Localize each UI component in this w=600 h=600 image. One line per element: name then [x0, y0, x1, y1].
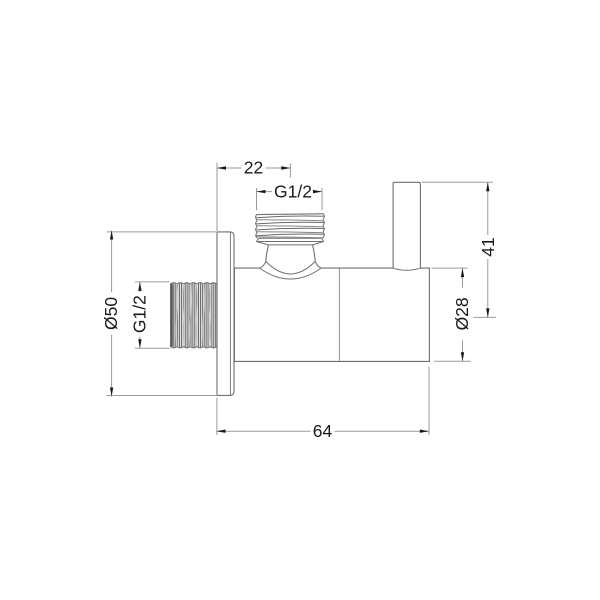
svg-text:Ø28: Ø28 — [452, 297, 472, 330]
svg-text:22: 22 — [244, 158, 263, 178]
svg-text:41: 41 — [478, 237, 498, 256]
svg-text:64: 64 — [313, 421, 333, 441]
svg-text:G1/2: G1/2 — [130, 295, 150, 333]
svg-text:Ø50: Ø50 — [101, 297, 121, 330]
svg-text:G1/2: G1/2 — [274, 181, 312, 201]
